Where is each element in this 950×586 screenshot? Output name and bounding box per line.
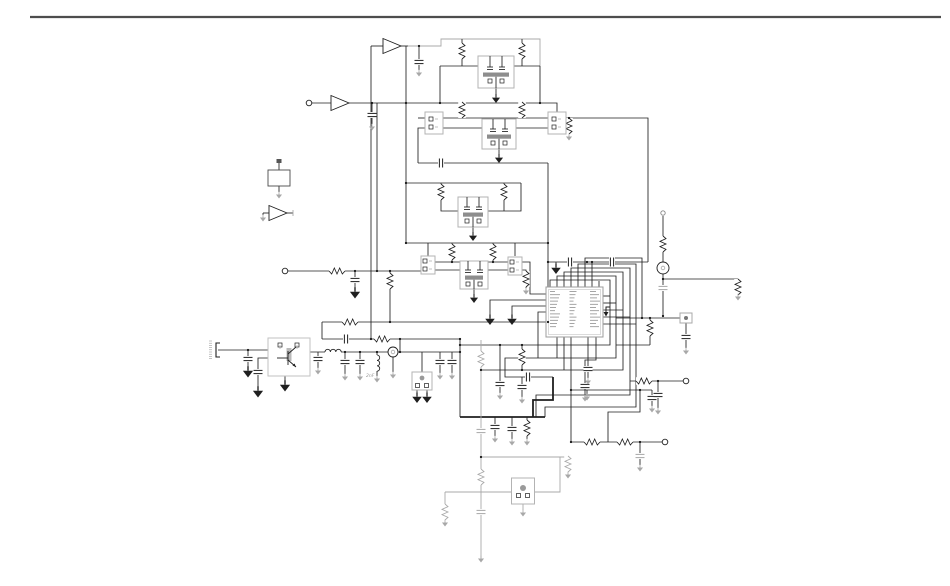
resistor [477, 469, 485, 485]
resistor [458, 43, 466, 59]
capacitor [654, 392, 663, 398]
dual-mosfet [478, 56, 514, 88]
circular-component [388, 347, 398, 357]
resistor [518, 43, 526, 59]
ground-icon [442, 520, 448, 527]
capacitor [368, 112, 377, 118]
ground-icon [350, 287, 360, 298]
resistor [500, 184, 508, 200]
ground-icon [412, 393, 422, 404]
ground-icon [416, 70, 422, 77]
resistor [659, 236, 667, 252]
capacitor [477, 428, 486, 434]
port-terminal [282, 268, 288, 274]
resistor [523, 420, 531, 436]
ic-chip [546, 287, 603, 337]
ground-icon [524, 439, 530, 446]
ground-icon [492, 436, 498, 443]
capacitor [567, 258, 573, 267]
ground-icon [637, 465, 643, 472]
resistor [636, 377, 652, 385]
dual-mosfet [458, 197, 488, 227]
resistor [518, 349, 526, 365]
ground-icon [315, 368, 321, 375]
ground-icon [509, 439, 515, 446]
dual-mosfet [460, 261, 488, 289]
capacitor [477, 509, 486, 515]
ground-icon [683, 348, 689, 355]
resistor [518, 102, 526, 118]
port-terminal [683, 378, 689, 384]
terminal [661, 211, 665, 215]
component-box [421, 256, 435, 274]
capacitor [508, 426, 517, 432]
ground-icon [507, 315, 517, 326]
schematic-page: 2nF [0, 0, 950, 586]
resistor [617, 438, 633, 446]
buffer-amp-icon [269, 206, 287, 221]
value-label: 2nF [366, 373, 375, 379]
ground-icon [449, 373, 455, 380]
capacitor [636, 453, 645, 459]
capacitor [341, 359, 350, 365]
dual-mosfet [482, 119, 516, 149]
resistor [522, 271, 530, 287]
crystal [680, 313, 692, 323]
pad [277, 159, 282, 163]
ground-icon [253, 386, 263, 397]
ground-icon [565, 472, 571, 479]
ground-icon [437, 373, 443, 380]
ground-icon [260, 215, 266, 222]
ground-icon [478, 556, 484, 563]
capacitor [351, 277, 360, 283]
ground-icon [243, 366, 253, 377]
resistor [329, 267, 345, 275]
capacitor [438, 159, 444, 168]
resistor [564, 456, 572, 472]
ground-icon [390, 372, 396, 379]
ground-icon [520, 510, 526, 517]
resistor [489, 244, 497, 260]
schematic-canvas: 2nF [0, 0, 950, 586]
capacitor [525, 373, 531, 382]
ground-icon [649, 406, 655, 413]
ground-icon [551, 264, 561, 275]
capacitor [448, 359, 457, 365]
capacitor [609, 258, 615, 267]
buffer-amp-icon [331, 96, 349, 111]
ground-icon [280, 380, 290, 391]
buffer-amp-icon [383, 39, 401, 54]
ground-icon [276, 192, 282, 199]
transistor-box [412, 372, 432, 390]
port-terminal [306, 100, 312, 106]
component-box [548, 112, 566, 134]
ground-icon [485, 315, 495, 326]
ground-icon [369, 124, 375, 131]
capacitor [682, 334, 691, 340]
ground-icon [357, 374, 363, 381]
wire [608, 390, 640, 442]
capacitor [356, 359, 365, 365]
resistor [342, 318, 358, 326]
port-terminal [662, 439, 668, 445]
ground-icon [422, 393, 432, 404]
circular-component [657, 262, 669, 274]
inductor [325, 349, 341, 353]
component-box [425, 112, 443, 134]
capacitor [343, 335, 349, 344]
capacitor [244, 356, 253, 362]
wire [535, 457, 560, 492]
ground-icon [497, 393, 503, 400]
resistor [386, 273, 394, 289]
ground-icon [523, 288, 529, 295]
resistor [448, 244, 456, 260]
resistor [584, 438, 600, 446]
capacitor [415, 59, 424, 65]
wire [566, 118, 648, 262]
ground-icon [374, 376, 380, 383]
capacitor [254, 369, 263, 375]
capacitor [496, 381, 505, 387]
component-box [508, 257, 522, 275]
inductor [377, 355, 381, 371]
transistor-box [512, 478, 535, 504]
capacitor [314, 356, 323, 362]
crystal-module [268, 170, 290, 186]
capacitor [518, 384, 527, 390]
ground-icon [495, 154, 503, 163]
ground-icon [469, 232, 477, 241]
transistor-module [268, 338, 310, 376]
ground-icon [519, 397, 525, 404]
capacitor [584, 366, 593, 372]
capacitor [491, 424, 500, 430]
ground-icon [655, 408, 661, 415]
resistor [458, 102, 466, 118]
ground-icon [470, 294, 478, 303]
wire [538, 312, 546, 358]
resistor [477, 351, 485, 367]
resistor [646, 320, 654, 336]
resistor [437, 184, 445, 200]
resistor [441, 504, 449, 520]
resistor [734, 279, 742, 295]
wire [512, 306, 546, 316]
ground-icon [492, 94, 500, 103]
pointer-arrow-icon [604, 307, 611, 317]
ground-icon [342, 374, 348, 381]
capacitor [436, 359, 445, 365]
ground-icon [566, 134, 572, 141]
wire [418, 128, 425, 163]
capacitor [659, 285, 668, 291]
resistor [374, 335, 390, 343]
